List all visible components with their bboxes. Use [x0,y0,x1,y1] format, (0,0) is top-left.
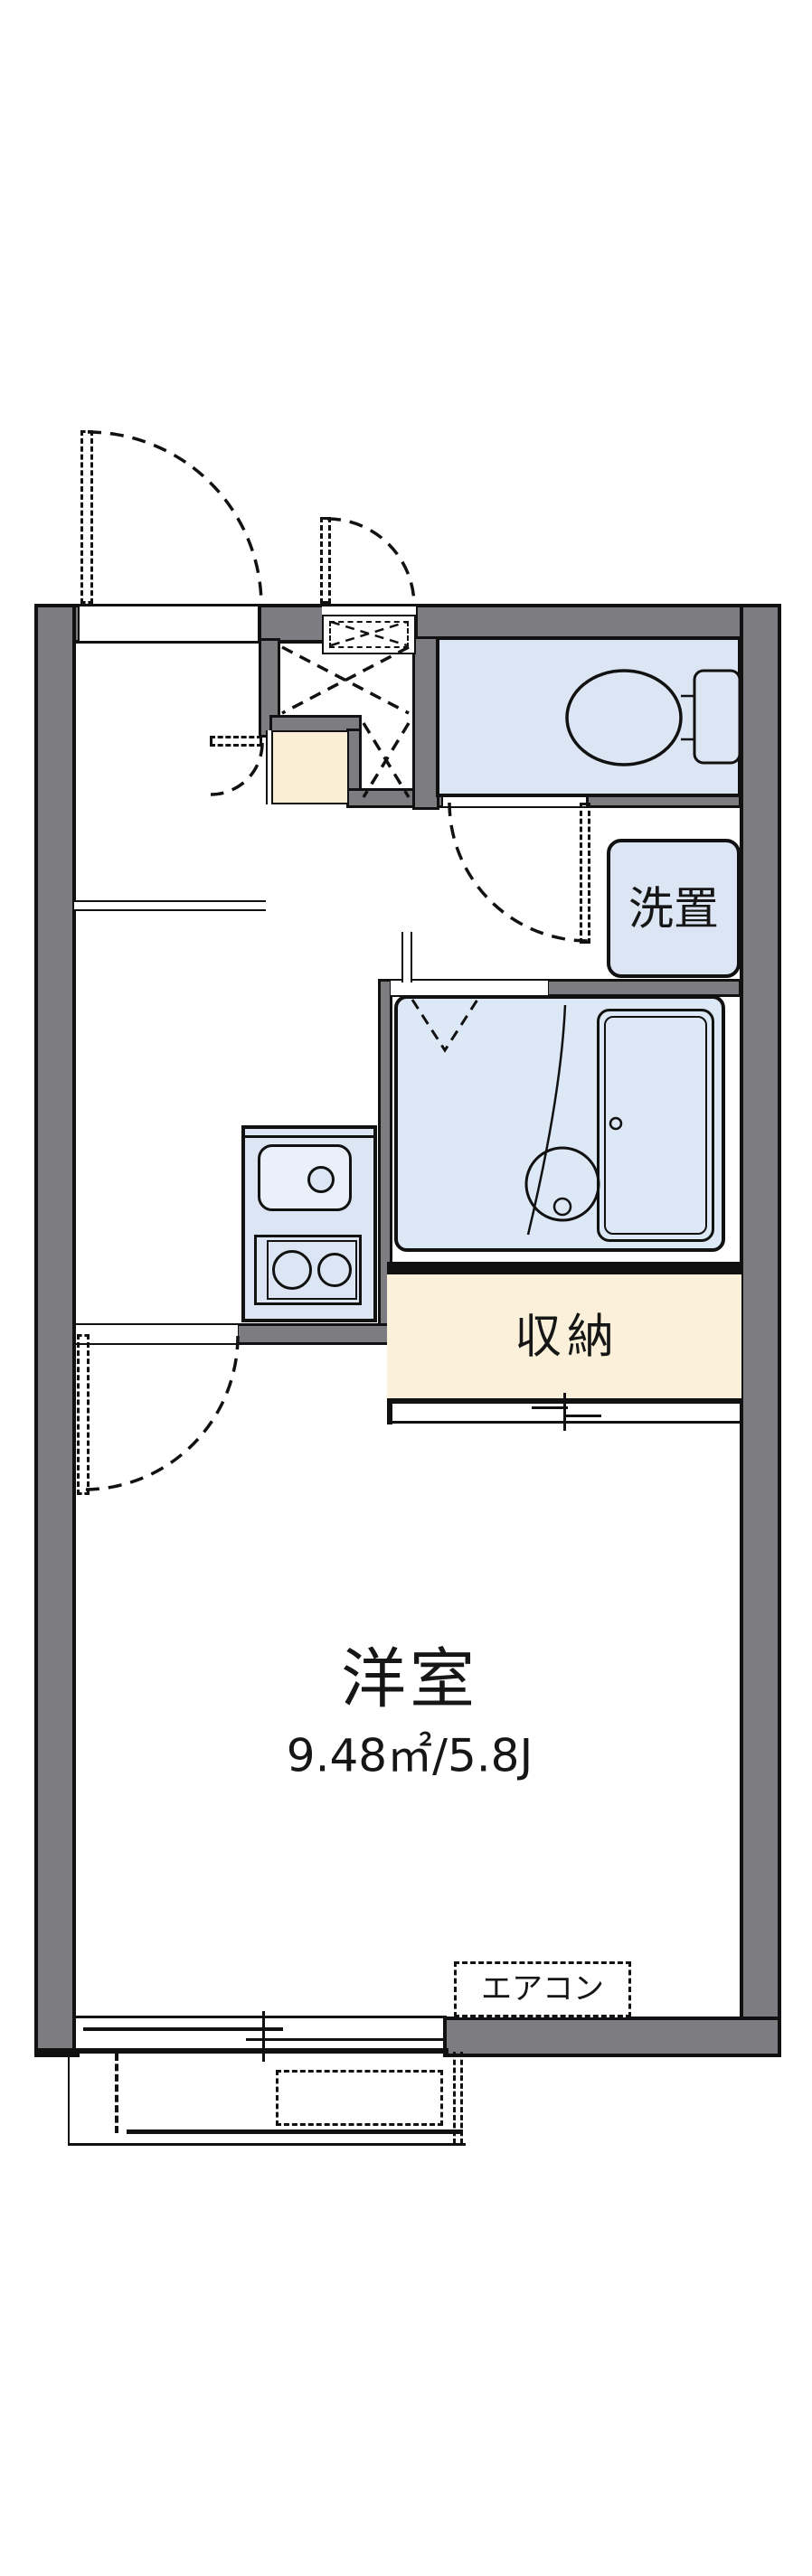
bath-drain [526,1118,621,1220]
genkan-floor-hatch [282,647,409,797]
toilet-bowl [567,671,681,765]
floor-plan-page: { "plan": { "labels": { "washer_space": … [0,0,812,2576]
floorplan-annotations [0,0,812,2576]
bathtub-drain [610,1118,621,1129]
toilet-tank [694,671,740,763]
entrance-door-arc [88,432,261,606]
floor-plan: 洗置 収納 洋室 9.48㎡/5.8J エアコン [0,0,812,2576]
door-swing-arcs [84,432,588,1490]
toilet-door-arc [449,803,588,941]
kitchen-door-arc [211,743,262,794]
shoe-cabinet-hatch [331,622,407,645]
toilet-fixture [567,671,740,765]
bath-folding-door [412,1000,477,1050]
mainroom-door-arc [84,1336,238,1490]
side-door-arc [327,519,414,606]
